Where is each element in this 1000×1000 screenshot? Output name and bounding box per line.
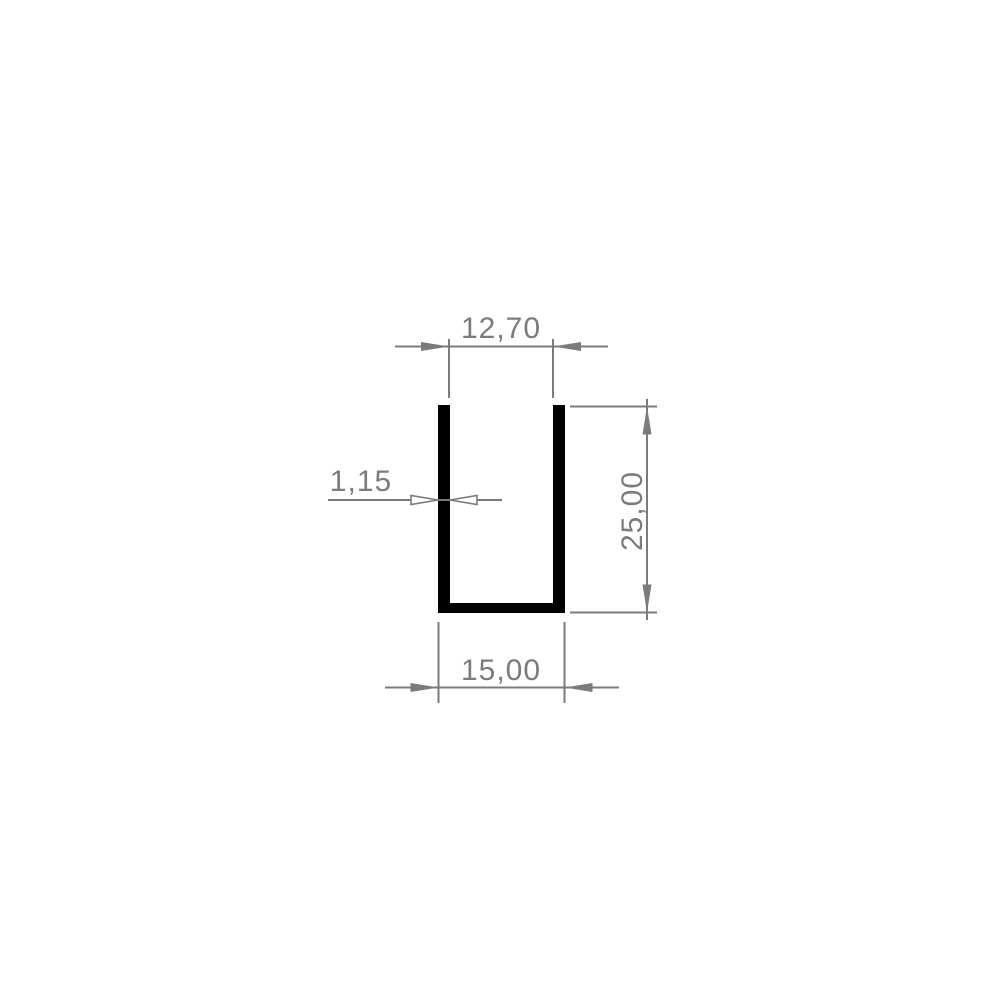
dimension-outer-width-label: 15,00 xyxy=(461,654,541,687)
arrowhead-right-icon xyxy=(565,683,593,692)
dimension-wall-thickness-label: 1,15 xyxy=(330,465,392,498)
arrowhead-up-icon xyxy=(643,407,652,435)
dimension-height: 25,00 xyxy=(570,399,657,620)
arrowhead-right-icon xyxy=(553,342,581,351)
dimension-wall-thickness: 1,15 xyxy=(328,465,502,505)
dimension-inner-width: 12,70 xyxy=(395,312,608,398)
dimension-inner-width-label: 12,70 xyxy=(461,312,541,345)
arrowhead-left-icon xyxy=(411,683,439,692)
technical-drawing-canvas: 12,70 1,15 25,00 15,00 xyxy=(0,0,1000,1000)
drawing-svg: 12,70 1,15 25,00 15,00 xyxy=(0,0,1000,1000)
dimension-outer-width: 15,00 xyxy=(385,622,619,703)
arrowhead-left-icon xyxy=(421,342,449,351)
arrowhead-down-icon xyxy=(643,585,652,613)
arrowhead-hollow-right-icon xyxy=(450,496,477,505)
dimension-height-label: 25,00 xyxy=(616,471,649,551)
u-profile-shape xyxy=(438,405,565,613)
arrowhead-hollow-left-icon xyxy=(411,496,438,505)
